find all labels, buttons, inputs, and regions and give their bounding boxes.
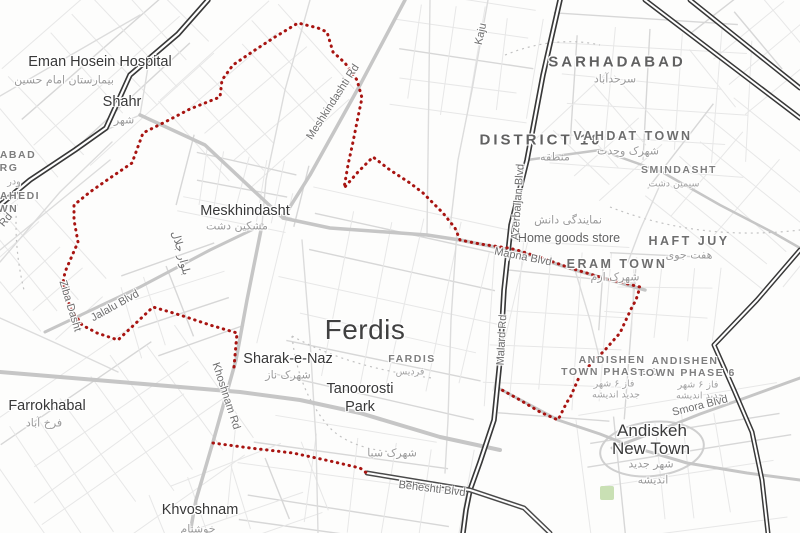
label-farrokhabal-fa: فرخ آباد <box>26 417 62 430</box>
label-tanoorosti-park-1[interactable]: Tanoorosti <box>327 381 394 397</box>
label-vahdat-town-fa: شهرک وحدت <box>597 145 659 158</box>
label-andishen-town-e-1[interactable]: ANDISHEN <box>652 355 719 367</box>
label-sarhadabad-fa: سرحدآباد <box>594 73 636 86</box>
park-area <box>600 486 614 500</box>
label-sarhadabad[interactable]: SARHADABAD <box>548 54 686 71</box>
label-smindasht-fa: سیمین دشت <box>649 179 700 190</box>
label-home-goods-store-fa: نمایندگی دانش <box>534 214 602 227</box>
label-andiskeh-new-town-1[interactable]: Andiskeh <box>617 421 687 441</box>
label-ferdis[interactable]: Ferdis <box>325 314 406 346</box>
label-shahr[interactable]: Shahr <box>103 94 142 110</box>
label-edge-fa: ودر <box>7 177 20 188</box>
label-tanoorosti-park-2[interactable]: Park <box>345 399 375 415</box>
label-andishen-town-w-fa2: جدید اندیشه <box>592 390 640 401</box>
label-eman-hosein-hospital-fa: بیمارستان امام حسین <box>14 74 114 87</box>
label-andishen-town-e-fa1: فاز ۶ شهر <box>678 380 719 391</box>
label-andishen-town-w-fa1: فاز ۶ شهر <box>594 379 635 390</box>
label-home-goods-store[interactable]: Home goods store <box>518 231 620 245</box>
label-sharak-e-naz-fa: شهرک ناز <box>265 369 310 382</box>
label-sharak-saba-fa: شهرک سبا <box>367 447 417 460</box>
map-viewport[interactable]: Eman Hosein Hospitalبیمارستان امام حسینS… <box>0 0 800 533</box>
label-haft-juy[interactable]: HAFT JUY <box>648 234 729 248</box>
label-eman-hosein-hospital[interactable]: Eman Hosein Hospital <box>28 54 171 70</box>
label-eram-town[interactable]: ERAM TOWN <box>567 257 668 271</box>
label-andiskeh-fa1: شهر جدید <box>628 458 673 471</box>
label-vahdat-town[interactable]: VAHDAT TOWN <box>573 129 692 143</box>
label-haft-juy-fa: هفت جوی <box>666 249 713 262</box>
label-smindasht[interactable]: SMINDASHT <box>641 164 717 176</box>
label-andishen-town-w-1[interactable]: ANDISHEN <box>579 354 646 366</box>
label-meskhindasht[interactable]: Meskhindasht <box>200 203 289 219</box>
label-khvoshnam-fa: خوشنام <box>180 523 215 533</box>
label-eram-town-fa: شهرک ارم <box>591 271 640 284</box>
label-district-10-fa: منطقه <box>540 151 570 164</box>
label-khvoshnam[interactable]: Khvoshnam <box>162 502 239 518</box>
label-farrokhabal[interactable]: Farrokhabal <box>8 398 85 414</box>
label-andishen-town-e-2[interactable]: TOWN PHASE 6 <box>638 367 736 379</box>
label-edge-ahedi[interactable]: AHEDI <box>0 190 40 202</box>
label-andiskeh-new-town-2[interactable]: New Town <box>612 439 690 459</box>
label-fardis-fa: فردیس <box>396 367 425 378</box>
label-sharak-e-naz[interactable]: Sharak-e-Naz <box>243 351 332 367</box>
label-edge-abad[interactable]: ABAD <box>0 149 36 161</box>
label-shahr-fa: شهر <box>114 114 134 127</box>
label-edge-rg[interactable]: RG <box>0 162 18 174</box>
beheshti-blvd-road <box>367 473 550 533</box>
label-fardis[interactable]: FARDIS <box>388 353 436 365</box>
label-meskhindasht-fa: مشکین دشت <box>206 220 268 233</box>
label-andiskeh-fa2: اندیشه <box>638 474 669 487</box>
